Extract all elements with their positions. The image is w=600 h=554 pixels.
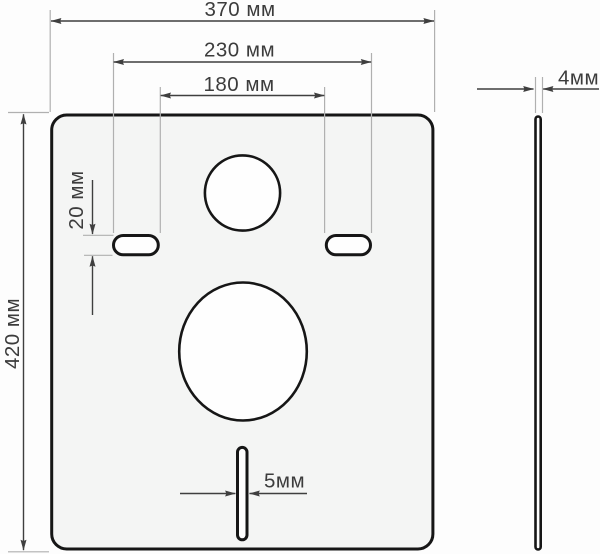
svg-text:20 мм: 20 мм	[65, 170, 88, 229]
svg-text:180 мм: 180 мм	[203, 73, 274, 96]
svg-text:420 мм: 420 мм	[1, 298, 24, 369]
svg-text:370 мм: 370 мм	[204, 0, 275, 21]
svg-text:230 мм: 230 мм	[204, 39, 275, 62]
svg-text:5мм: 5мм	[264, 470, 305, 493]
svg-text:4мм: 4мм	[558, 67, 599, 90]
